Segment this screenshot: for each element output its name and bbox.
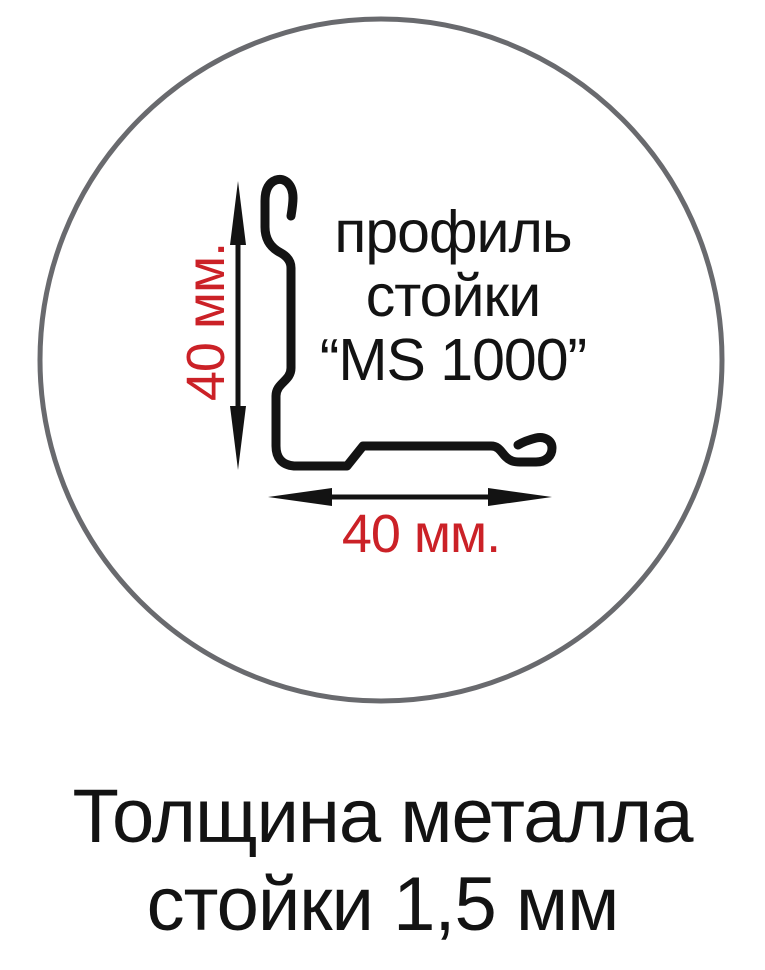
profile-name-label: профиль стойки “MS 1000” [318, 200, 588, 392]
caption-line-1: Толщина металла [0, 773, 765, 861]
page: 40 мм. 40 мм. профиль стойки “MS 1000” Т… [0, 0, 765, 970]
arrowhead-left-icon [268, 488, 332, 506]
horizontal-dimension-label: 40 мм. [271, 506, 571, 562]
vertical-dimension-label: 40 мм. [178, 202, 234, 442]
caption-line-2: стойки 1,5 мм [0, 861, 765, 949]
profile-name-line-2: стойки [318, 264, 588, 328]
caption: Толщина металла стойки 1,5 мм [0, 773, 765, 949]
profile-name-line-3: “MS 1000” [318, 328, 588, 392]
profile-name-line-1: профиль [318, 200, 588, 264]
